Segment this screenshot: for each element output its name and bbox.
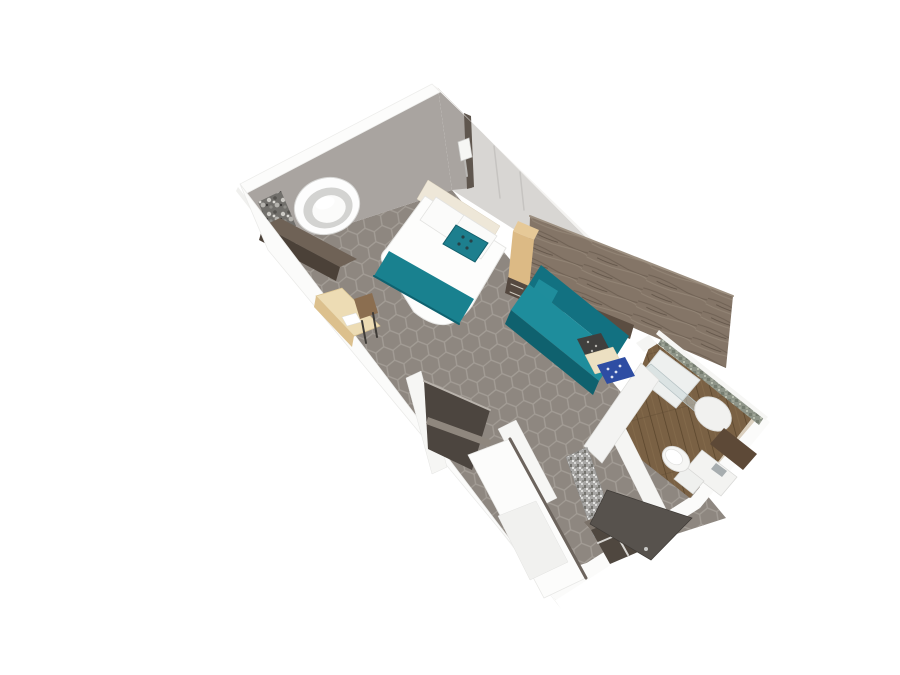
sofa-pillow-dark-dot — [591, 350, 593, 352]
entry-door-handle — [644, 547, 648, 551]
sofa-pillow-blue-dot — [611, 376, 614, 379]
wall-sconce-light — [458, 138, 472, 161]
stateroom-rendering-page — [0, 0, 900, 675]
stateroom-3d-view — [0, 0, 900, 675]
sofa-pillow-blue-dot — [615, 371, 618, 374]
sofa-pillow-blue-dot — [619, 365, 622, 368]
bed-accent-pillow-dot — [465, 246, 468, 249]
sofa-pillow-blue-dot — [607, 368, 610, 371]
bed-accent-pillow-dot — [457, 242, 460, 245]
sofa-pillow-dark-dot — [587, 341, 589, 343]
bed-accent-pillow-dot — [469, 239, 472, 242]
bed-accent-pillow-dot — [461, 235, 464, 238]
sofa-pillow-dark-dot — [595, 345, 597, 347]
